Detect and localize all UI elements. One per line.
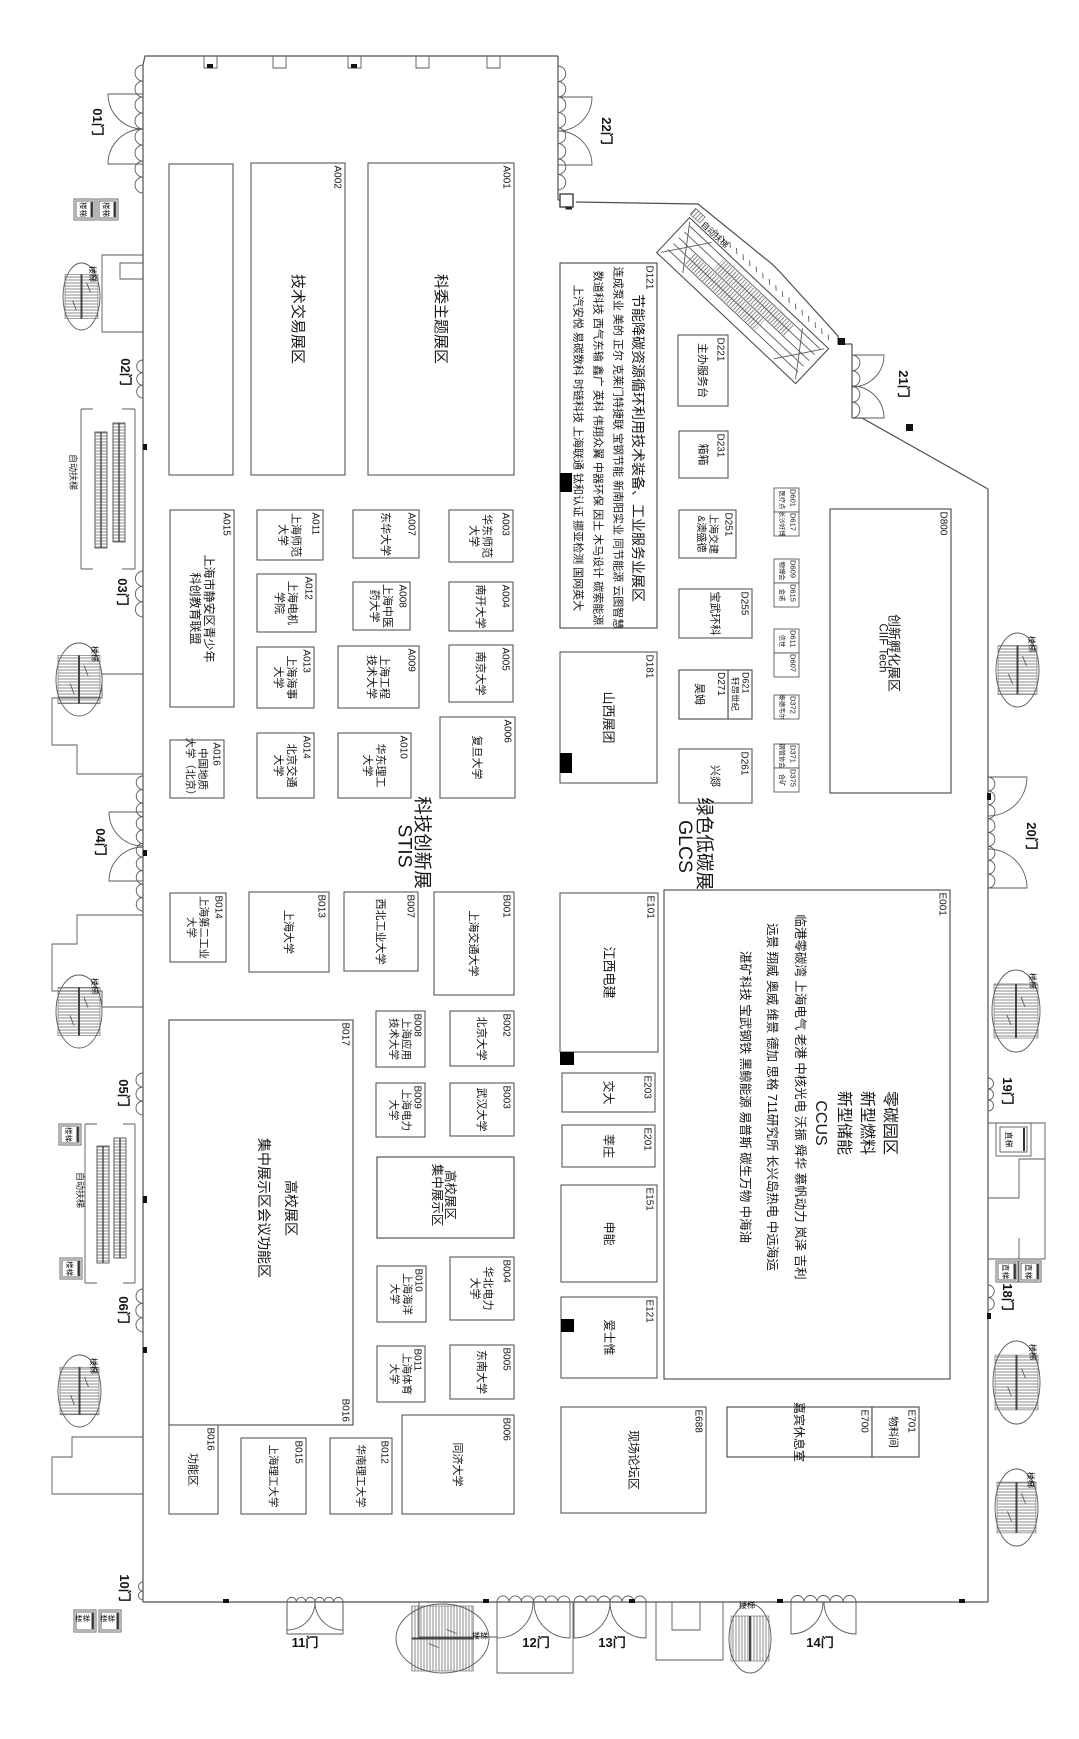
svg-text:上海师范: 上海师范 <box>290 513 304 557</box>
svg-text:高校展区: 高校展区 <box>443 1170 458 1220</box>
svg-text:D181: D181 <box>644 655 655 679</box>
svg-text:A016: A016 <box>211 743 222 767</box>
svg-text:B016: B016 <box>205 1428 216 1452</box>
svg-text:复旦大学: 复旦大学 <box>471 736 485 780</box>
svg-text:华北电力: 华北电力 <box>482 1267 496 1311</box>
svg-text:B006: B006 <box>501 1418 512 1442</box>
svg-text:物料间: 物料间 <box>887 1416 900 1448</box>
svg-text:D261: D261 <box>739 752 750 776</box>
svg-text:&澳盛德: &澳盛德 <box>695 516 708 553</box>
svg-text:东南大学: 东南大学 <box>475 1350 489 1394</box>
svg-text:A001: A001 <box>501 166 512 190</box>
svg-text:A006: A006 <box>502 720 513 744</box>
svg-text:A003: A003 <box>500 513 511 537</box>
svg-text:莘庄: 莘庄 <box>601 1134 616 1158</box>
svg-text:03门: 03门 <box>115 578 130 605</box>
svg-text:楼梯: 楼梯 <box>90 646 100 662</box>
svg-text:A010: A010 <box>398 736 409 760</box>
svg-text:B010: B010 <box>413 1269 424 1293</box>
svg-text:STIS: STIS <box>394 824 416 867</box>
svg-text:06门: 06门 <box>116 1296 131 1323</box>
svg-text:上海市静安区青少年: 上海市静安区青少年 <box>202 554 217 662</box>
svg-text:02门: 02门 <box>118 358 133 385</box>
svg-text:绿色低碳展: 绿色低碳展 <box>694 797 715 890</box>
svg-text:楼梯: 楼梯 <box>1026 1472 1036 1488</box>
svg-text:科委主题展区: 科委主题展区 <box>432 274 449 364</box>
svg-text:武汉大学: 武汉大学 <box>475 1088 489 1132</box>
svg-text:楼梯: 楼梯 <box>1028 973 1038 989</box>
svg-text:B017: B017 <box>340 1023 351 1047</box>
svg-text:D601: D601 <box>789 489 798 507</box>
svg-text:大学: 大学 <box>185 917 198 938</box>
svg-text:D617: D617 <box>789 513 798 531</box>
svg-text:A004: A004 <box>500 585 511 609</box>
svg-text:大学（北京）: 大学（北京） <box>184 738 197 801</box>
svg-text:楼梯: 楼梯 <box>1028 1344 1038 1360</box>
svg-text:D607: D607 <box>789 654 798 672</box>
svg-text:大学: 大学 <box>277 524 291 546</box>
svg-text:宝武环科: 宝武环科 <box>709 592 723 636</box>
svg-text:物博会: 物博会 <box>778 562 787 582</box>
svg-text:CIIF Tech: CIIF Tech <box>877 624 889 673</box>
svg-text:D371: D371 <box>789 745 798 763</box>
svg-text:上海第二工业: 上海第二工业 <box>198 896 211 959</box>
svg-text:嘉宾休息室: 嘉宾休息室 <box>792 1402 807 1462</box>
svg-text:湛矿科技 宝武钢铁 黑鲸能源 易普斯 碳生万物 中海油: 湛矿科技 宝武钢铁 黑鲸能源 易普斯 碳生万物 中海油 <box>738 951 753 1243</box>
svg-text:楼梯: 楼梯 <box>739 1600 755 1610</box>
svg-text:E700: E700 <box>859 1410 870 1434</box>
svg-text:昊姆: 昊姆 <box>693 683 707 705</box>
svg-text:上海体育: 上海体育 <box>401 1353 414 1395</box>
svg-text:A005: A005 <box>500 648 511 672</box>
svg-text:上海电力: 上海电力 <box>400 1089 413 1131</box>
svg-text:E701: E701 <box>906 1410 917 1434</box>
svg-text:A011: A011 <box>310 513 321 536</box>
svg-text:上海工程: 上海工程 <box>378 655 392 699</box>
svg-text:楼梯: 楼梯 <box>100 1613 116 1623</box>
svg-text:楼梯: 楼梯 <box>64 1127 74 1143</box>
svg-text:科创教育联盟: 科创教育联盟 <box>188 572 203 644</box>
svg-text:楼梯: 楼梯 <box>79 202 89 217</box>
svg-text:学院: 学院 <box>273 592 287 614</box>
svg-text:功能区: 功能区 <box>187 1453 201 1486</box>
svg-text:大学: 大学 <box>272 755 286 777</box>
svg-text:直梯: 直梯 <box>1001 1264 1011 1280</box>
svg-text:中国地质: 中国地质 <box>197 748 210 790</box>
svg-text:01门: 01门 <box>90 108 105 135</box>
svg-text:B009: B009 <box>412 1086 423 1110</box>
svg-text:临港零碳湾 上海电气 老港 中核光电 沃振 舜华 慕帆动力: 临港零碳湾 上海电气 老港 中核光电 沃振 舜华 慕帆动力 岚泽 吉利 <box>793 914 808 1279</box>
svg-text:直梯: 直梯 <box>1024 1264 1034 1280</box>
svg-text:CCUS: CCUS <box>812 1100 829 1145</box>
svg-text:大学: 大学 <box>272 667 286 689</box>
svg-text:大学: 大学 <box>389 1284 402 1305</box>
svg-text:南京大学: 南京大学 <box>474 652 488 696</box>
svg-text:D615: D615 <box>789 584 798 602</box>
svg-text:远景 翔威 奥威 维景 德加 思格 711研究所 长兴: 远景 翔威 奥威 维景 德加 思格 711研究所 长兴岛热电 中远海运 <box>765 923 780 1271</box>
svg-text:大学: 大学 <box>388 1100 401 1121</box>
svg-text:自动扶梯: 自动扶梯 <box>68 454 79 490</box>
svg-text:自动扶梯: 自动扶梯 <box>75 1172 86 1208</box>
svg-text:12门: 12门 <box>522 1635 549 1650</box>
svg-text:新型储能: 新型储能 <box>835 1091 853 1155</box>
svg-text:A002: A002 <box>332 166 343 190</box>
svg-text:西北工业大学: 西北工业大学 <box>374 899 388 965</box>
svg-text:上海交建: 上海交建 <box>707 514 720 554</box>
svg-text:E001: E001 <box>937 893 948 917</box>
svg-text:上海大学: 上海大学 <box>282 910 296 954</box>
svg-text:集中展示区: 集中展示区 <box>430 1164 445 1227</box>
svg-text:同济大学: 同济大学 <box>451 1443 465 1487</box>
svg-text:E688: E688 <box>693 1410 704 1434</box>
svg-text:D255: D255 <box>739 592 750 616</box>
svg-text:B001: B001 <box>501 895 512 919</box>
svg-text:山西展团: 山西展团 <box>601 691 616 743</box>
svg-text:现场论坛区: 现场论坛区 <box>626 1430 640 1490</box>
svg-text:华南理工大学: 华南理工大学 <box>354 1445 367 1508</box>
svg-text:A008: A008 <box>397 585 408 609</box>
svg-text:上汽安悦 易碳数科 时链科技 上海联通 钛和认证 挪亚检测: 上汽安悦 易碳数科 时链科技 上海联通 钛和认证 挪亚检测 国网英大 <box>572 285 586 611</box>
svg-text:数道科技 西气东输 鑫广 英科 伟翔众翼 中器环保 因土 木: 数道科技 西气东输 鑫广 英科 伟翔众翼 中器环保 因土 木马设计 碳索能源 <box>592 271 606 625</box>
svg-text:上海电机: 上海电机 <box>286 581 300 625</box>
svg-text:技术大学: 技术大学 <box>365 655 379 699</box>
svg-text:20门: 20门 <box>1024 822 1039 849</box>
svg-text:技术交易展区: 技术交易展区 <box>289 274 307 364</box>
svg-text:上海中医: 上海中医 <box>381 584 395 628</box>
svg-text:上海海事: 上海海事 <box>285 656 299 700</box>
svg-text:11门: 11门 <box>292 1635 319 1650</box>
svg-text:D621: D621 <box>741 672 751 694</box>
svg-text:上海应用: 上海应用 <box>400 1018 413 1060</box>
svg-text:B005: B005 <box>501 1348 512 1372</box>
svg-text:华东理工: 华东理工 <box>374 744 388 788</box>
svg-text:医疗点: 医疗点 <box>778 491 787 510</box>
svg-text:13门: 13门 <box>598 1635 625 1650</box>
svg-text:E201: E201 <box>642 1128 653 1152</box>
svg-text:楼梯: 楼梯 <box>65 1261 75 1277</box>
svg-text:E121: E121 <box>644 1300 655 1324</box>
svg-text:北京交通: 北京交通 <box>285 744 299 788</box>
svg-text:集中展示区会议功能区: 集中展示区会议功能区 <box>256 1138 272 1278</box>
svg-text:D372: D372 <box>789 696 798 714</box>
svg-text:技术大学: 技术大学 <box>388 1018 401 1060</box>
svg-text:B008: B008 <box>412 1014 423 1038</box>
svg-text:高校展区: 高校展区 <box>283 1180 299 1236</box>
svg-text:连成泵业 美的 正尔 克莱门特捷联 宝钢节能 新南阳实业 同: 连成泵业 美的 正尔 克莱门特捷联 宝钢节能 新南阳实业 同节能源 云图智慧 <box>612 267 626 629</box>
svg-text:21门: 21门 <box>896 370 911 397</box>
svg-text:信世: 信世 <box>778 635 787 648</box>
svg-text:A015: A015 <box>221 513 232 537</box>
svg-text:E203: E203 <box>642 1076 653 1100</box>
svg-text:爱士惟: 爱士惟 <box>602 1319 616 1355</box>
svg-text:楼梯: 楼梯 <box>89 1358 99 1374</box>
svg-text:A007: A007 <box>406 513 417 537</box>
svg-text:04门: 04门 <box>93 828 108 855</box>
svg-text:泰德韦尔: 泰德韦尔 <box>778 694 787 719</box>
svg-text:楼梯: 楼梯 <box>90 978 100 994</box>
svg-text:22门: 22门 <box>599 117 614 144</box>
svg-text:长沙好博: 长沙好博 <box>778 511 787 537</box>
svg-text:B015: B015 <box>293 1441 304 1465</box>
svg-text:大学: 大学 <box>361 755 375 777</box>
svg-text:B002: B002 <box>501 1014 512 1038</box>
svg-text:华东师范: 华东师范 <box>481 514 495 558</box>
svg-text:B016: B016 <box>340 1399 351 1423</box>
svg-text:大学: 大学 <box>469 1278 483 1300</box>
svg-text:主办服务台: 主办服务台 <box>696 343 710 398</box>
svg-text:E101: E101 <box>645 896 656 920</box>
svg-text:D375: D375 <box>789 769 798 787</box>
svg-text:D609: D609 <box>789 560 798 578</box>
svg-text:D221: D221 <box>715 338 726 362</box>
svg-text:A014: A014 <box>301 736 312 760</box>
svg-text:10门: 10门 <box>117 1574 132 1601</box>
svg-text:D231: D231 <box>715 434 726 458</box>
svg-text:申能: 申能 <box>602 1221 616 1245</box>
svg-text:A009: A009 <box>406 649 417 673</box>
svg-text:楼梯: 楼梯 <box>1027 636 1037 652</box>
svg-text:节能降碳资源循环利用技术装备、工业服务业展区: 节能降碳资源循环利用技术装备、工业服务业展区 <box>630 294 646 602</box>
svg-text:上海交通大学: 上海交通大学 <box>467 911 481 977</box>
svg-text:14门: 14门 <box>806 1635 833 1650</box>
svg-text:箱箱: 箱箱 <box>697 444 711 466</box>
svg-text:B013: B013 <box>316 895 327 919</box>
svg-text:D271: D271 <box>715 672 726 696</box>
svg-text:江西电建: 江西电建 <box>601 946 616 998</box>
svg-text:钢管协会: 钢管协会 <box>778 743 787 769</box>
svg-text:楼梯: 楼梯 <box>472 1631 488 1641</box>
svg-text:合矿: 合矿 <box>778 774 787 787</box>
svg-text:A012: A012 <box>303 577 314 601</box>
svg-text:上海理工大学: 上海理工大学 <box>267 1445 280 1508</box>
svg-text:B007: B007 <box>405 895 416 919</box>
svg-text:南开大学: 南开大学 <box>474 585 488 629</box>
svg-text:金诺: 金诺 <box>778 589 787 602</box>
svg-text:新型燃料: 新型燃料 <box>858 1091 876 1155</box>
svg-text:兴郯: 兴郯 <box>709 765 723 787</box>
svg-text:楼梯: 楼梯 <box>102 202 112 217</box>
svg-text:B003: B003 <box>501 1086 512 1110</box>
svg-text:直梯: 直梯 <box>1004 1132 1014 1148</box>
svg-text:楼梯: 楼梯 <box>75 1613 91 1623</box>
svg-text:E151: E151 <box>644 1188 655 1212</box>
svg-text:交大: 交大 <box>601 1080 616 1104</box>
svg-text:轩昂世纪: 轩昂世纪 <box>730 677 740 712</box>
svg-text:18门: 18门 <box>1000 1283 1015 1310</box>
svg-text:上海海洋: 上海海洋 <box>401 1273 414 1315</box>
svg-text:大学: 大学 <box>468 525 482 547</box>
svg-text:东华大学: 东华大学 <box>379 512 393 556</box>
svg-text:A013: A013 <box>301 650 312 674</box>
svg-text:楼梯: 楼梯 <box>88 266 98 282</box>
svg-text:D121: D121 <box>644 266 655 290</box>
svg-text:D611: D611 <box>789 630 798 647</box>
svg-text:药大学: 药大学 <box>368 590 382 623</box>
svg-text:大学: 大学 <box>388 1364 401 1385</box>
svg-text:B012: B012 <box>379 1441 390 1465</box>
svg-text:B014: B014 <box>213 896 224 920</box>
svg-text:05门: 05门 <box>116 1079 131 1106</box>
svg-text:B004: B004 <box>501 1260 512 1284</box>
svg-text:19门: 19门 <box>1000 1077 1015 1104</box>
svg-text:D800: D800 <box>938 512 949 536</box>
svg-text:零碳园区: 零碳园区 <box>881 1091 899 1155</box>
svg-text:北京大学: 北京大学 <box>475 1017 489 1061</box>
svg-text:D251: D251 <box>723 513 734 537</box>
svg-text:GLCS: GLCS <box>674 820 696 873</box>
